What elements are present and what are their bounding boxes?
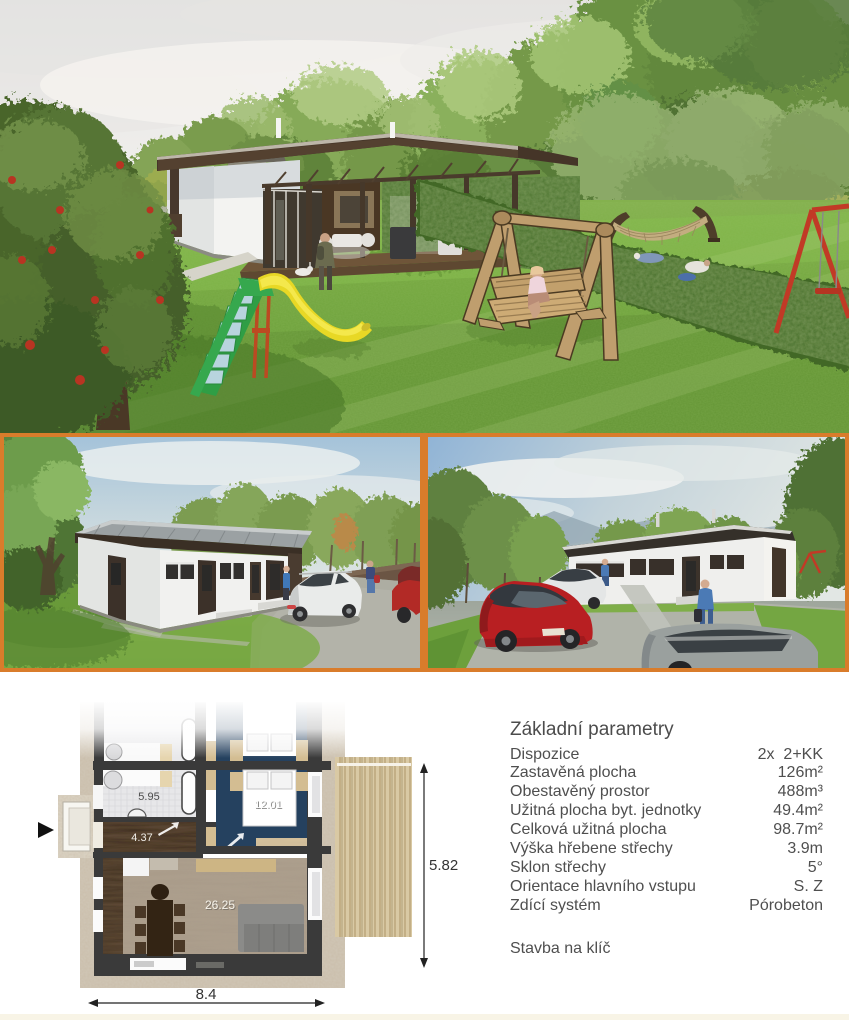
svg-text:12.01: 12.01 <box>254 799 282 811</box>
svg-text:4.37: 4.37 <box>131 832 152 844</box>
svg-text:26.25: 26.25 <box>205 898 235 912</box>
svg-text:5.95: 5.95 <box>138 791 159 803</box>
svg-text:8.4: 8.4 <box>196 986 217 1003</box>
svg-text:5.82: 5.82 <box>429 857 458 874</box>
